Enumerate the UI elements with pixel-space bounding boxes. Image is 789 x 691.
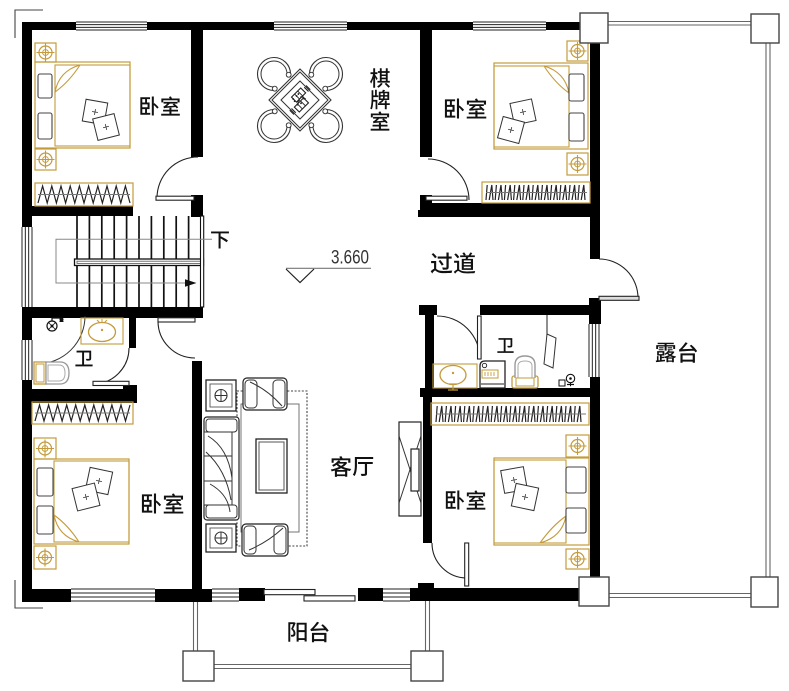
svg-text:3.660: 3.660 [331,246,369,268]
